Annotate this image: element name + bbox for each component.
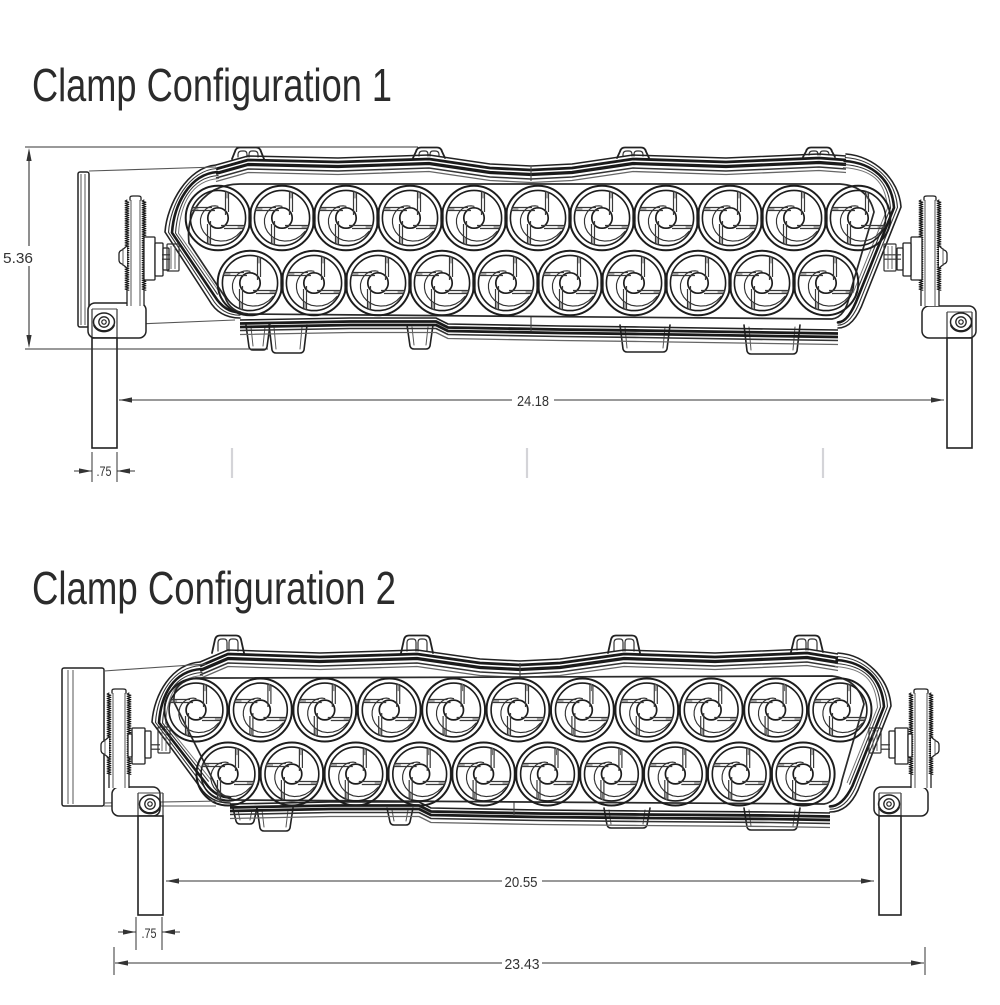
svg-text:20.55: 20.55 — [505, 874, 538, 891]
svg-text:24.18: 24.18 — [517, 393, 549, 410]
svg-text:Clamp Configuration 2: Clamp Configuration 2 — [32, 562, 396, 614]
svg-text:23.43: 23.43 — [505, 956, 540, 973]
svg-text:Clamp Configuration 1: Clamp Configuration 1 — [32, 59, 392, 111]
svg-text:5.36: 5.36 — [3, 250, 33, 267]
svg-text:.75: .75 — [97, 463, 112, 479]
svg-text:.75: .75 — [142, 925, 157, 941]
